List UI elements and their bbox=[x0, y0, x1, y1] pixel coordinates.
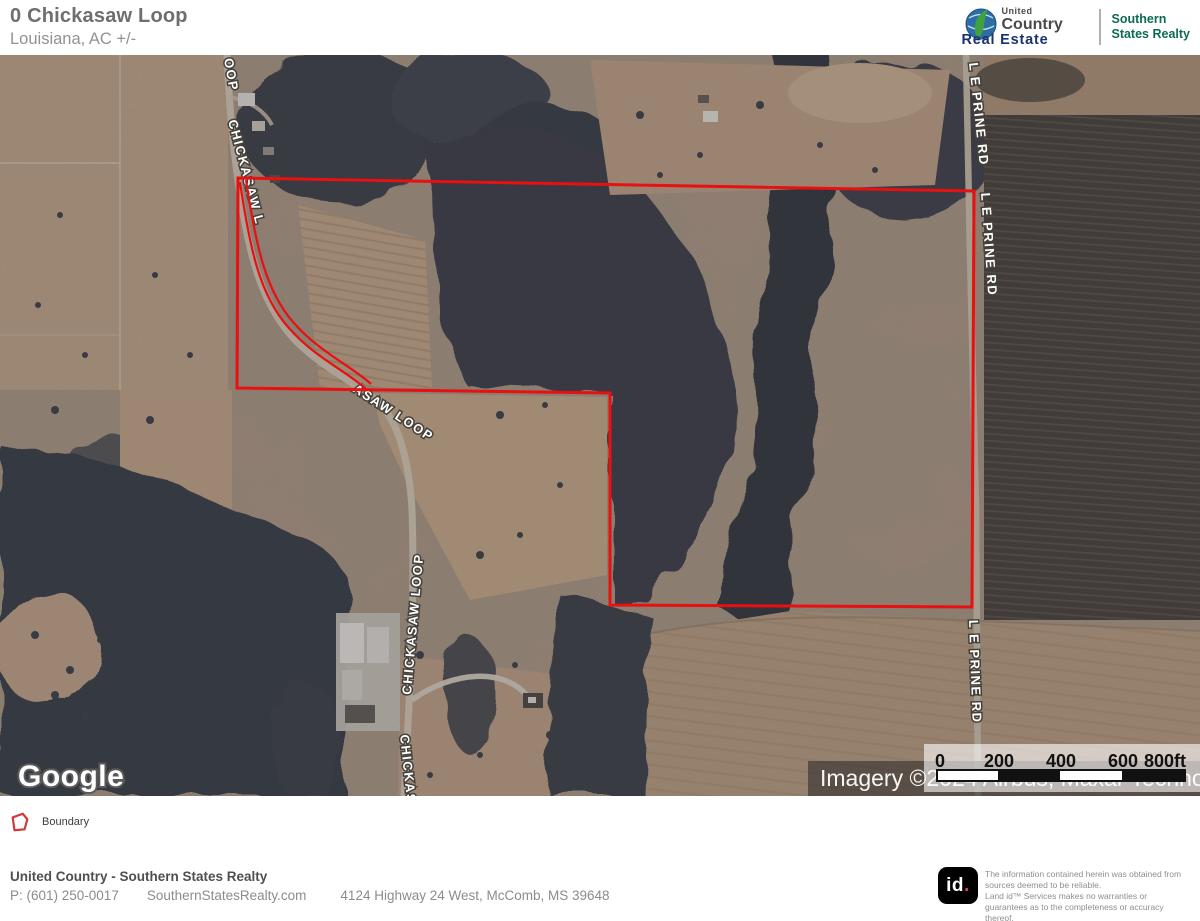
footer-contact-block: United Country - Southern States Realty … bbox=[10, 869, 610, 903]
legend-item-boundary: Boundary bbox=[9, 810, 89, 834]
footer-address: 4124 Highway 24 West, McComb, MS 39648 bbox=[340, 888, 609, 903]
legend: Boundary bbox=[0, 796, 1200, 860]
page-title: 0 Chickasaw Loop bbox=[10, 5, 188, 28]
google-watermark[interactable]: Google bbox=[18, 760, 124, 793]
header: 0 Chickasaw Loop Louisiana, AC +/- Unite… bbox=[0, 0, 1200, 55]
brand-divider bbox=[1099, 9, 1101, 45]
united-country-wordmark: United Country bbox=[1001, 7, 1062, 33]
footer-website-link[interactable]: SouthernStatesRealty.com bbox=[147, 888, 307, 903]
footer-disclaimer-block: id. The information contained herein was… bbox=[938, 867, 1188, 921]
footer-company: United Country - Southern States Realty bbox=[10, 869, 610, 884]
footer-contact-line: P: (601) 250-0017SouthernStatesRealty.co… bbox=[10, 888, 610, 903]
satellite-map: OOP CHICKASAW L ASAW LOOP CHICKASAW LOOP… bbox=[0, 55, 1200, 796]
scale-tick-400: 400 bbox=[1046, 751, 1076, 771]
brand-logo: United Country Real Estate Southern Stat… bbox=[955, 6, 1190, 48]
legend-boundary-label: Boundary bbox=[42, 816, 89, 828]
footer: United Country - Southern States Realty … bbox=[0, 860, 1200, 921]
boundary-legend-icon bbox=[9, 810, 31, 834]
page-subtitle: Louisiana, AC +/- bbox=[10, 30, 188, 49]
land-id-logo: id. bbox=[938, 867, 978, 904]
office-name: Southern States Realty bbox=[1111, 12, 1190, 42]
footer-phone: P: (601) 250-0017 bbox=[10, 888, 119, 903]
scale-tick-200: 200 bbox=[984, 751, 1014, 771]
map-viewport: OOP CHICKASAW L ASAW LOOP CHICKASAW LOOP… bbox=[0, 55, 1200, 796]
disclaimer-text: The information contained herein was obt… bbox=[985, 867, 1188, 921]
real-estate-wordmark: Real Estate bbox=[961, 32, 1048, 48]
scale-tick-0: 0 bbox=[935, 751, 945, 771]
united-country-logo: United Country Real Estate bbox=[955, 6, 1093, 48]
scale-bar: 0 200 400 600 800ft bbox=[924, 744, 1200, 792]
scale-tick-800: 800ft bbox=[1144, 751, 1186, 771]
imagery-grain bbox=[0, 55, 1200, 796]
scale-tick-600: 600 bbox=[1108, 751, 1138, 771]
listing-title-block: 0 Chickasaw Loop Louisiana, AC +/- bbox=[10, 5, 188, 49]
